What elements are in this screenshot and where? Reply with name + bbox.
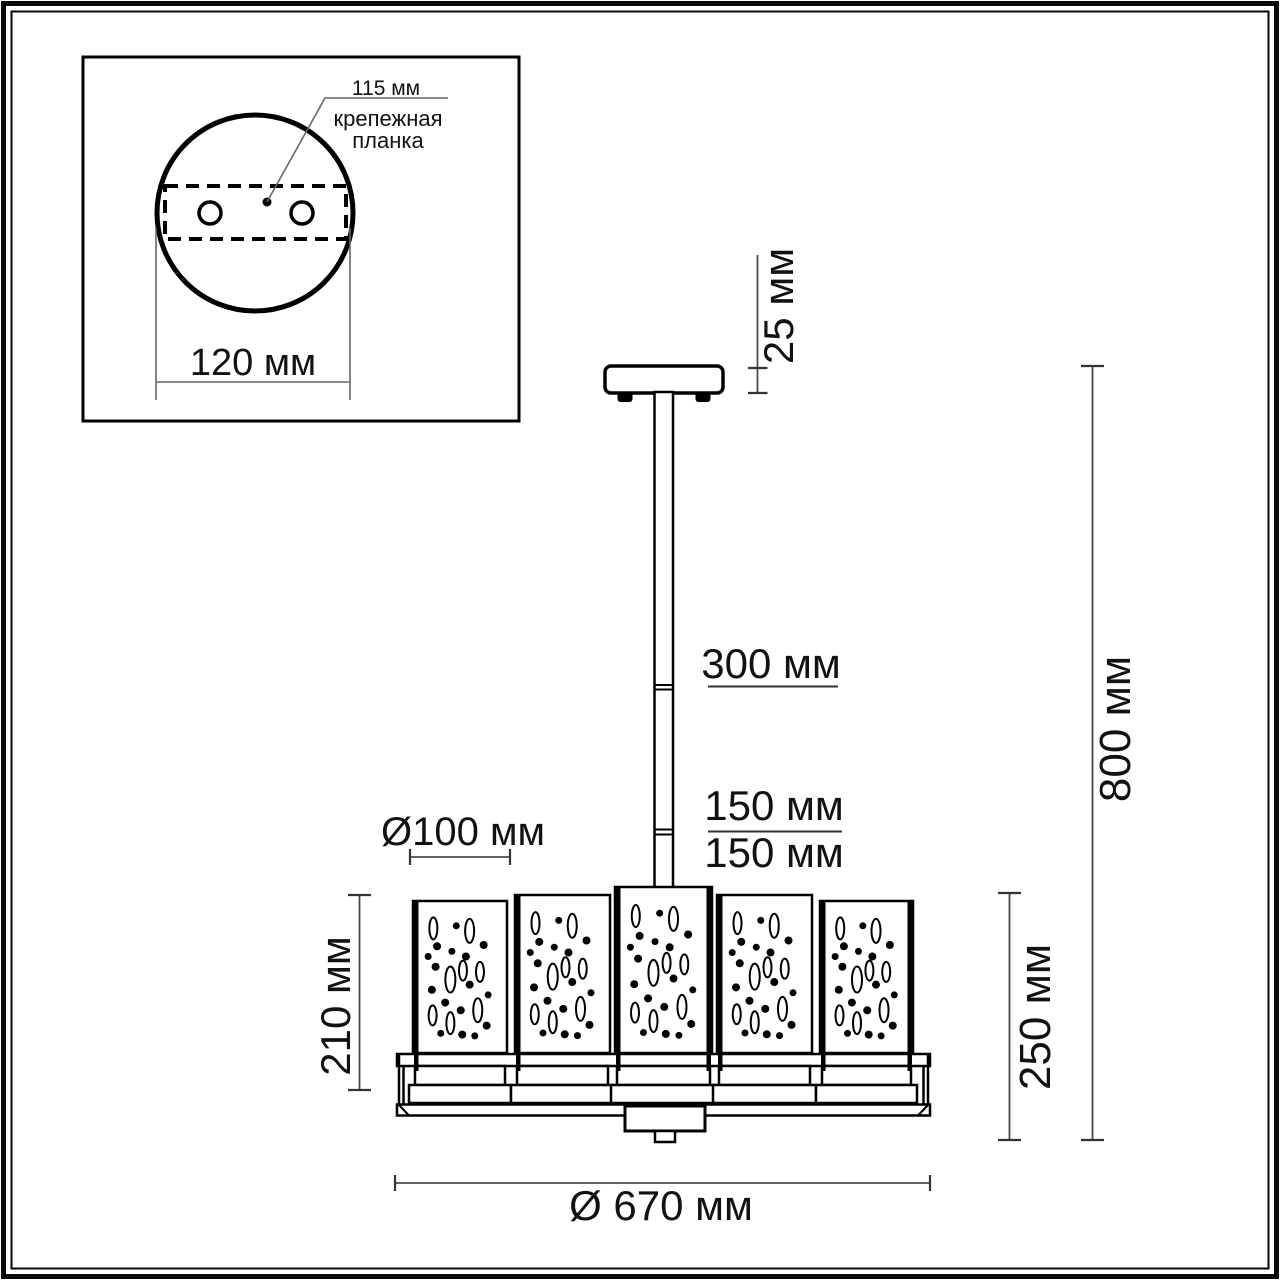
perforation-dot (540, 1029, 547, 1036)
perforation-oval (871, 919, 880, 943)
perforation-dot (583, 937, 591, 945)
perforation-oval (532, 912, 540, 934)
shade-base-box (409, 1085, 511, 1103)
perforation-dot (832, 953, 839, 960)
perforation-oval (568, 914, 577, 938)
perforation-dot (636, 932, 644, 940)
perforation-oval (836, 917, 844, 939)
perforation-dot (534, 959, 542, 967)
canopy-circle (157, 115, 353, 311)
perforation-dot (732, 983, 740, 991)
perforation-oval (465, 919, 474, 943)
mounting-hole-left (199, 202, 221, 224)
perforation-dot (428, 986, 436, 994)
perforation-dot (588, 989, 595, 996)
canopy-height-label: 25 мм (755, 248, 802, 364)
perforation-oval (751, 1011, 759, 1033)
perforation-dot (559, 1005, 567, 1013)
shade-3 (611, 887, 716, 1103)
perforation-dot (483, 1022, 491, 1030)
perforation-dot (785, 937, 793, 945)
perforation-dot (763, 1030, 771, 1038)
perforation-dot (485, 991, 492, 998)
perforation-dot (838, 963, 846, 971)
perforation-dot (466, 981, 474, 989)
perforation-dot (872, 981, 880, 989)
perforation-oval (853, 1012, 861, 1034)
perforation-oval (562, 957, 570, 977)
perforation-dot (441, 999, 449, 1007)
perforation-dot (855, 948, 862, 955)
shade-5 (816, 901, 917, 1103)
perforation-dot (770, 978, 778, 986)
inset-canopy-top-view: 115 мм крепежная планка 120 мм (83, 57, 519, 421)
suspension-rod (655, 392, 674, 888)
perforation-dot (448, 948, 455, 955)
perforation-dot (670, 975, 678, 983)
perforation-dot (555, 917, 562, 924)
perforation-oval (473, 998, 482, 1022)
perforation-oval (778, 997, 787, 1021)
diagram-canvas: 115 мм крепежная планка 120 мм (0, 0, 1280, 1280)
perforation-dot (627, 944, 634, 951)
shade-lower-section (719, 1066, 810, 1085)
shade-base-box (713, 1085, 816, 1103)
perforation-dot (684, 931, 692, 939)
shade-side-strip-left (516, 896, 521, 1071)
perforation-oval (445, 967, 455, 993)
perforation-dot (687, 1020, 695, 1028)
perforation-dot (574, 1032, 581, 1039)
perforation-oval (677, 995, 686, 1019)
perforation-dot (640, 1029, 647, 1036)
perforation-dot (437, 1030, 444, 1037)
perforation-oval (733, 1004, 741, 1024)
perforation-oval (852, 967, 862, 993)
perforation-dot (666, 943, 674, 951)
perforation-oval (648, 960, 658, 986)
perforation-dot (891, 991, 898, 998)
mounting-hole-right (291, 202, 313, 224)
perforation-dot (790, 989, 797, 996)
rod-lower-label: 150 мм (704, 829, 844, 876)
perforation-dot (660, 1003, 668, 1011)
shade-side-strip-right (908, 902, 913, 1071)
perforation-dot (886, 941, 894, 949)
perforation-dot (865, 1031, 873, 1039)
perforation-oval (548, 964, 558, 990)
perforation-dot (433, 942, 441, 950)
perforation-dot (675, 1032, 682, 1039)
shade-base-box (511, 1085, 614, 1103)
perforation-dot (544, 997, 552, 1005)
shade-base-box (816, 1085, 917, 1103)
perforation-dot (840, 942, 848, 950)
perforation-dot (425, 953, 432, 960)
shade-1 (409, 901, 511, 1103)
perforation-oval (476, 962, 484, 982)
perforation-dot (527, 949, 534, 956)
perforation-oval (446, 1012, 454, 1034)
perforation-dot (480, 941, 488, 949)
perforation-dot (848, 999, 856, 1007)
body-height-label: 250 мм (1011, 944, 1060, 1090)
perforation-dot (729, 949, 736, 956)
perforation-oval (579, 959, 587, 979)
perforation-oval (750, 964, 760, 990)
perforation-dot (844, 1030, 851, 1037)
shade-4 (713, 895, 816, 1103)
perforation-dot (742, 1029, 749, 1036)
perforation-dot (644, 994, 652, 1002)
perforation-dot (689, 986, 696, 993)
canopy-diameter-label: 120 мм (190, 342, 316, 384)
perforation-oval (429, 917, 437, 939)
shade-height-label: 210 мм (312, 936, 359, 1076)
perforation-oval (882, 962, 890, 982)
canopy-bolt-right (696, 392, 711, 402)
perforation-dot (530, 983, 538, 991)
chandelier-drawing (397, 366, 930, 1142)
ceiling-canopy (605, 366, 723, 393)
total-height-label: 800 мм (1091, 656, 1140, 802)
perforation-dot (736, 959, 744, 967)
perforation-oval (459, 961, 467, 981)
shade-side-strip-left (414, 902, 419, 1071)
shade-lower-section (517, 1066, 608, 1085)
total-diameter-label: Ø 670 мм (569, 1182, 753, 1229)
canopy-bolt-left (618, 392, 633, 402)
perforation-dot (462, 953, 470, 961)
center-finial-stub (655, 1131, 675, 1142)
perforation-oval (531, 1004, 539, 1024)
perforation-dot (753, 944, 760, 951)
perforation-oval (680, 954, 688, 974)
perforation-dot (757, 917, 764, 924)
perforation-dot (656, 910, 663, 917)
perforation-dot (457, 1006, 465, 1014)
rod-mid-label: 150 мм (704, 782, 844, 829)
perforation-oval (663, 953, 671, 973)
perforation-dot (863, 1006, 871, 1014)
perforation-dot (835, 986, 843, 994)
perforation-oval (549, 1011, 557, 1033)
perforation-oval (576, 997, 585, 1021)
perforation-dot (868, 953, 876, 961)
shade-lower-section (415, 1066, 505, 1085)
perforation-dot (561, 1030, 569, 1038)
perforation-dot (878, 1032, 885, 1039)
shade-lower-section (617, 1066, 710, 1085)
perforation-dot (788, 1021, 796, 1029)
shade-lower-section (822, 1066, 911, 1085)
perforation-oval (632, 905, 640, 927)
plate-name-line2: планка (352, 128, 424, 153)
perforation-dot (767, 949, 775, 957)
perforation-dot (432, 963, 440, 971)
perforation-oval (865, 961, 873, 981)
perforation-oval (631, 1003, 639, 1023)
rod-upper-label: 300 мм (701, 640, 841, 687)
perforation-oval (880, 998, 889, 1022)
perforation-dot (458, 1031, 466, 1039)
perforation-oval (734, 912, 742, 934)
shade-side-strip-left (718, 896, 723, 1071)
perforation-dot (453, 922, 460, 929)
shade-side-strip-left (821, 902, 826, 1071)
perforation-dot (471, 1032, 478, 1039)
shade-side-strip-right (707, 888, 712, 1071)
perforation-dot (761, 1005, 769, 1013)
shade-diameter-label: Ø100 мм (381, 810, 545, 854)
perforation-dot (535, 938, 543, 946)
perforation-dot (551, 944, 558, 951)
perforation-dot (630, 980, 638, 988)
perforation-dot (889, 1022, 897, 1030)
perforation-oval (781, 959, 789, 979)
technical-drawing-page: 115 мм крепежная планка 120 мм (0, 0, 1280, 1280)
perforation-dot (586, 1021, 594, 1029)
perforation-dot (565, 949, 573, 957)
plate-length-label: 115 мм (352, 77, 420, 100)
perforation-dot (652, 938, 659, 945)
perforation-dot (662, 1030, 670, 1038)
perforation-oval (770, 914, 779, 938)
center-finial-box (625, 1106, 705, 1131)
perforation-dot (568, 978, 576, 986)
shades-layer (409, 887, 917, 1103)
shade-base-box (611, 1085, 716, 1103)
perforation-oval (835, 1005, 843, 1025)
perforation-dot (634, 955, 642, 963)
perforation-dot (859, 922, 866, 929)
perforation-dot (776, 1032, 783, 1039)
perforation-dot (737, 938, 745, 946)
perforation-oval (669, 907, 678, 931)
perforation-oval (649, 1010, 657, 1032)
shade-side-strip-left (616, 888, 621, 1071)
perforation-dot (746, 997, 754, 1005)
perforation-oval (764, 957, 772, 977)
perforation-oval (429, 1005, 437, 1025)
body-ring-band (397, 1054, 930, 1066)
shade-2 (511, 895, 614, 1103)
